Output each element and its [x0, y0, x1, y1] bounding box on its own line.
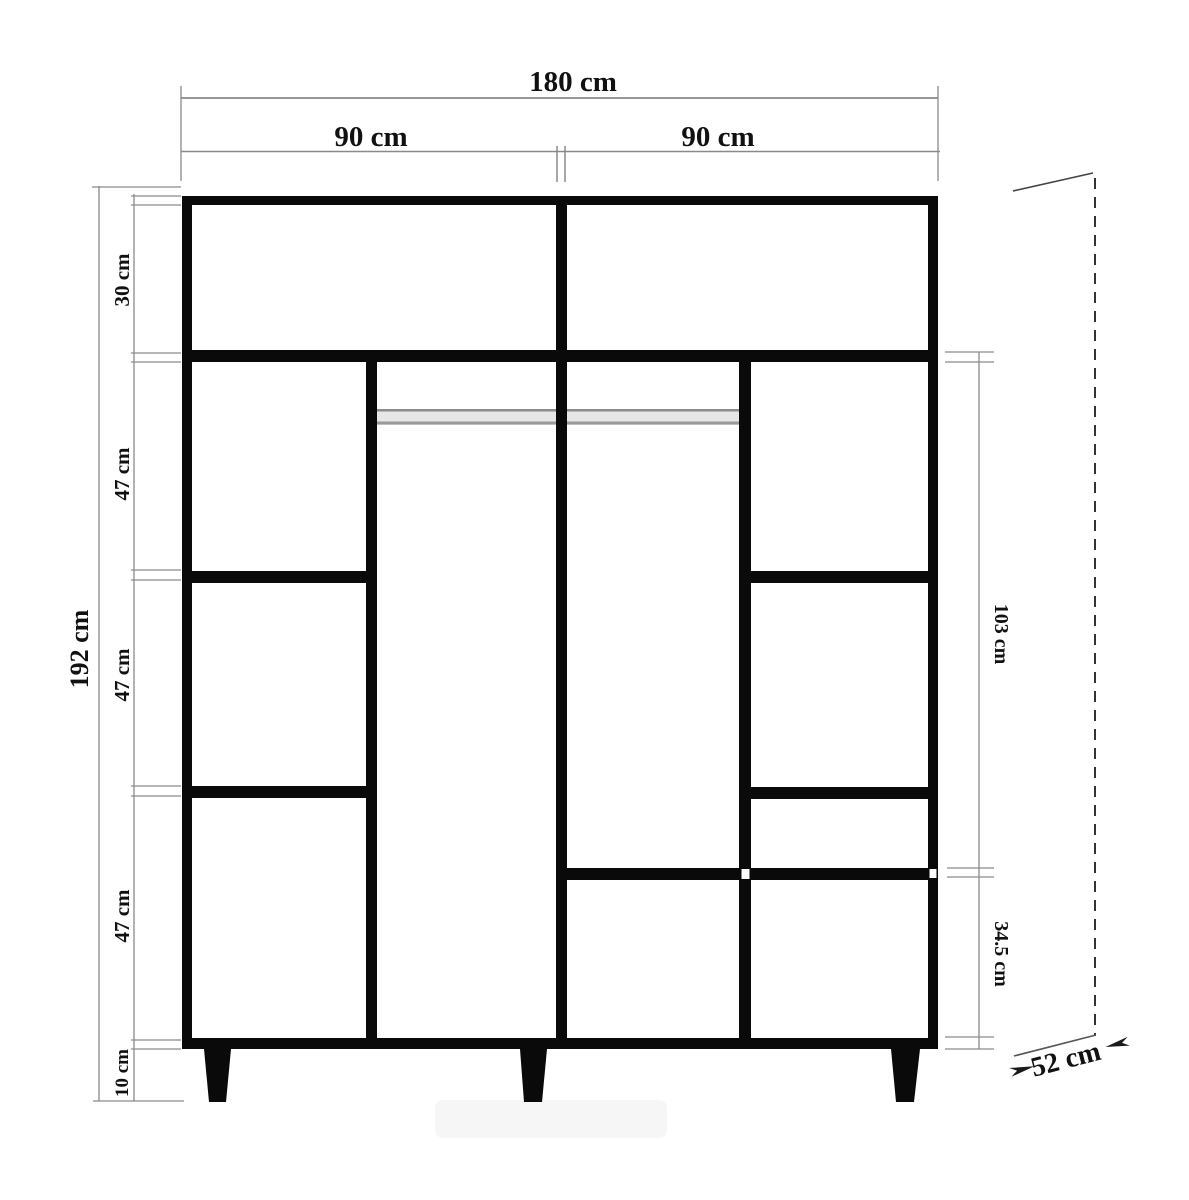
svg-text:47 cm: 47 cm [110, 447, 134, 501]
svg-text:30 cm: 30 cm [110, 253, 134, 307]
svg-text:10 cm: 10 cm [112, 1049, 133, 1097]
svg-text:192 cm: 192 cm [65, 609, 94, 688]
svg-text:103 cm: 103 cm [990, 604, 1012, 665]
svg-text:47 cm: 47 cm [110, 648, 134, 702]
svg-text:47 cm: 47 cm [110, 889, 134, 943]
svg-text:90 cm: 90 cm [334, 121, 407, 153]
svg-text:34.5 cm: 34.5 cm [990, 921, 1012, 987]
svg-text:180 cm: 180 cm [529, 66, 617, 98]
svg-text:90 cm: 90 cm [681, 121, 754, 153]
